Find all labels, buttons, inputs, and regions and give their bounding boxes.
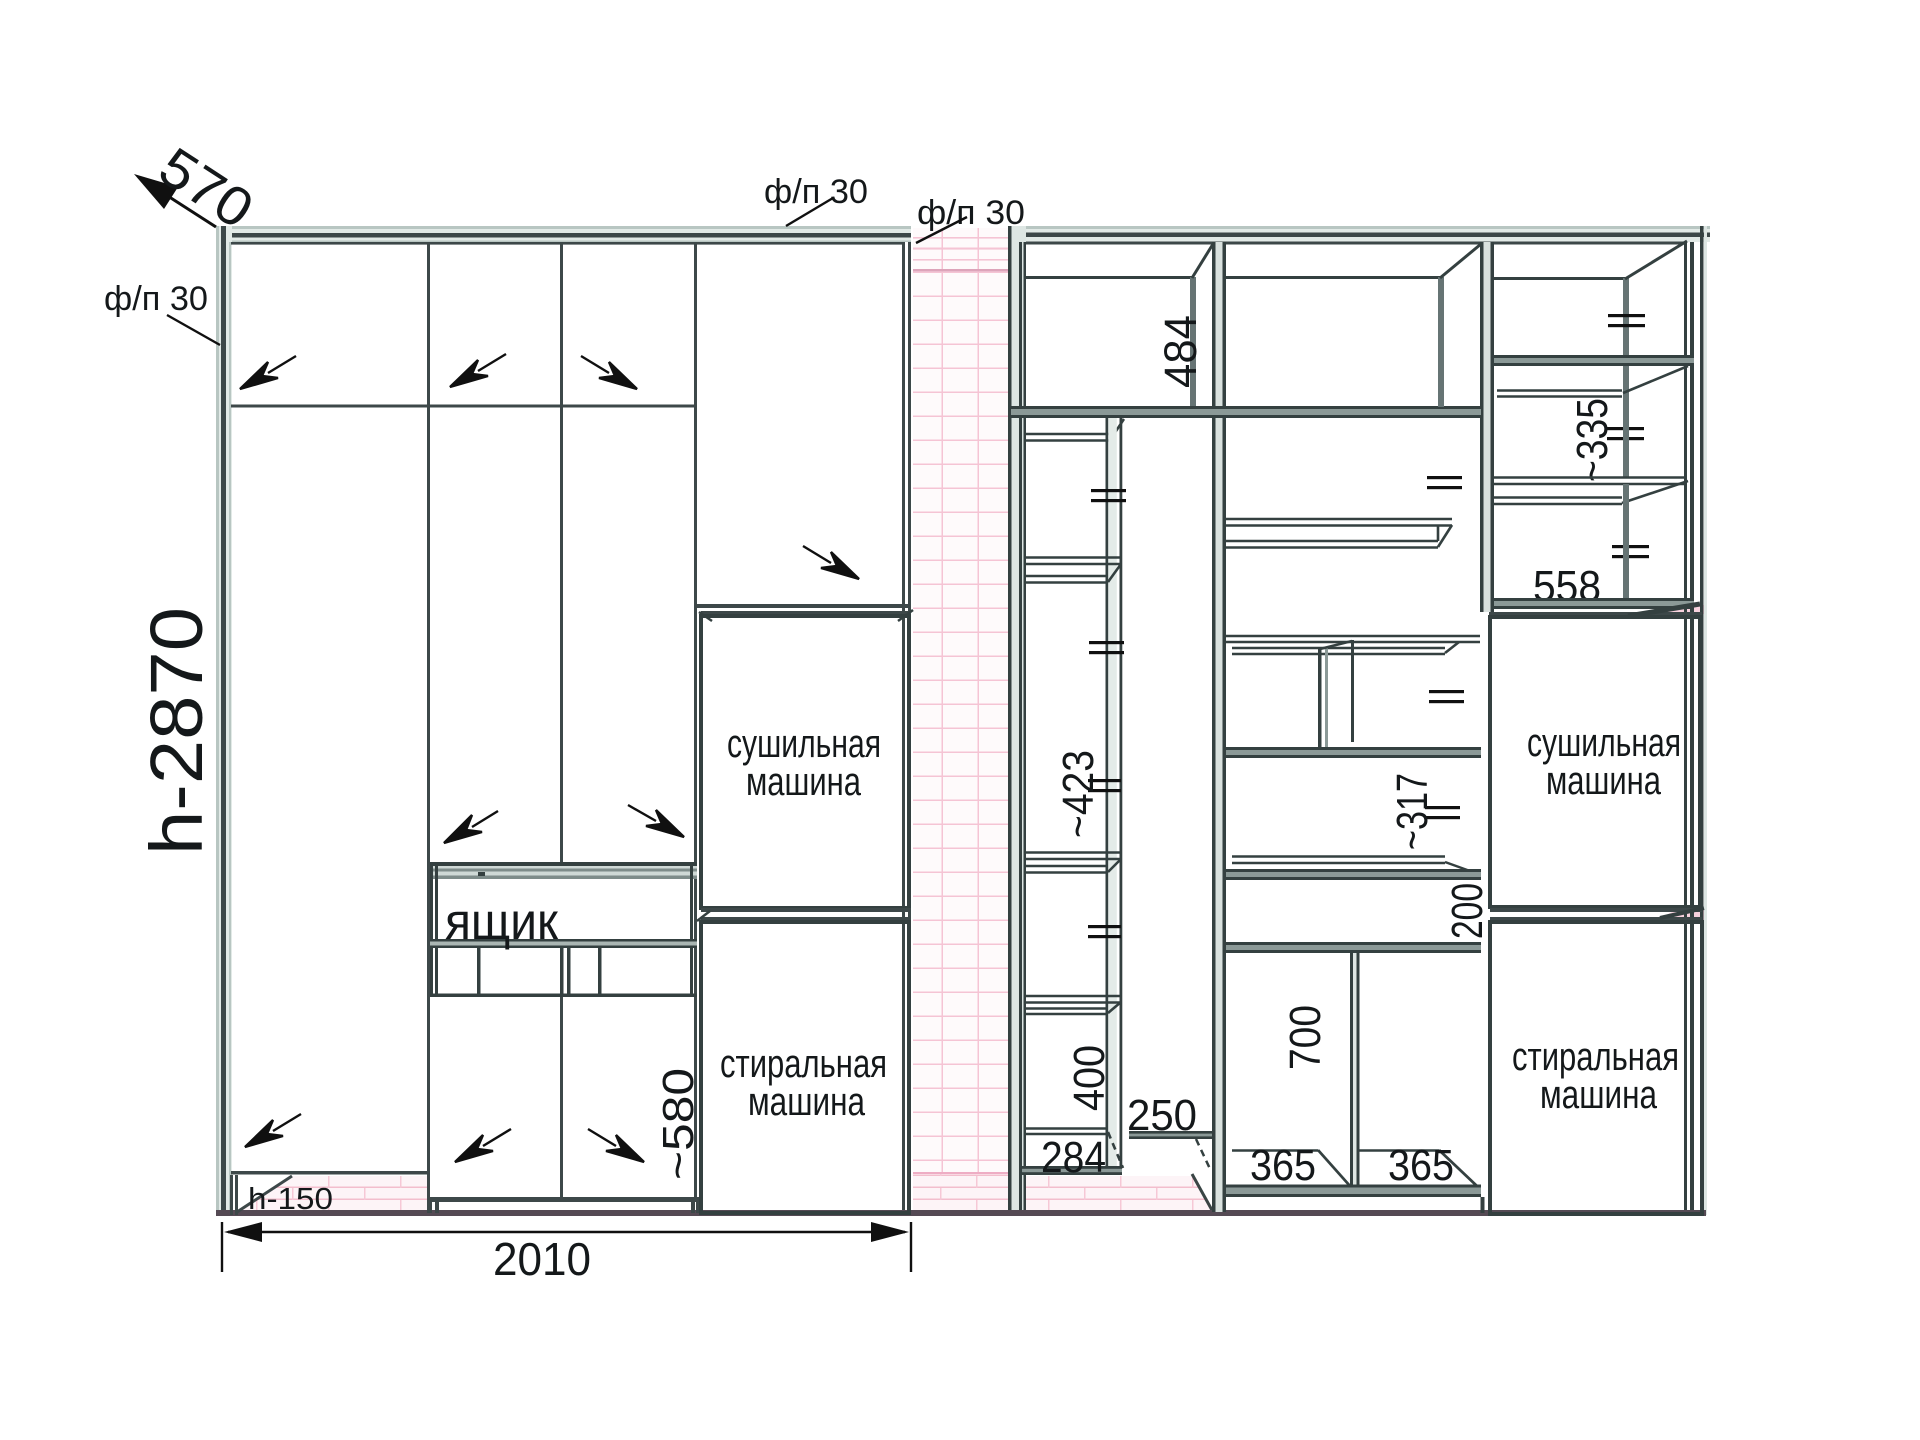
svg-text:~423: ~423 — [1054, 750, 1103, 838]
svg-text:400: 400 — [1065, 1045, 1114, 1111]
svg-text:h-2870: h-2870 — [135, 607, 218, 855]
svg-text:365: 365 — [1250, 1141, 1316, 1190]
svg-text:284: 284 — [1041, 1133, 1106, 1182]
svg-text:~317: ~317 — [1388, 773, 1437, 850]
svg-text:ф/п 30: ф/п 30 — [917, 194, 1025, 232]
svg-text:ф/п 30: ф/п 30 — [764, 173, 868, 211]
svg-text:ф/п 30: ф/п 30 — [104, 280, 208, 318]
svg-text:700: 700 — [1281, 1005, 1330, 1070]
svg-text:машина: машина — [746, 760, 862, 804]
svg-text:~335: ~335 — [1568, 398, 1617, 482]
svg-text:365: 365 — [1388, 1141, 1454, 1190]
svg-text:2010: 2010 — [493, 1233, 591, 1285]
svg-text:h-150: h-150 — [248, 1181, 333, 1216]
svg-text:~580: ~580 — [654, 1068, 703, 1180]
svg-text:ящик: ящик — [445, 893, 558, 951]
svg-text:200: 200 — [1443, 883, 1492, 939]
svg-text:250: 250 — [1127, 1091, 1197, 1140]
svg-text:машина: машина — [1540, 1073, 1658, 1117]
svg-text:машина: машина — [748, 1080, 866, 1124]
svg-text:машина: машина — [1546, 759, 1662, 803]
svg-text:484: 484 — [1155, 315, 1206, 388]
